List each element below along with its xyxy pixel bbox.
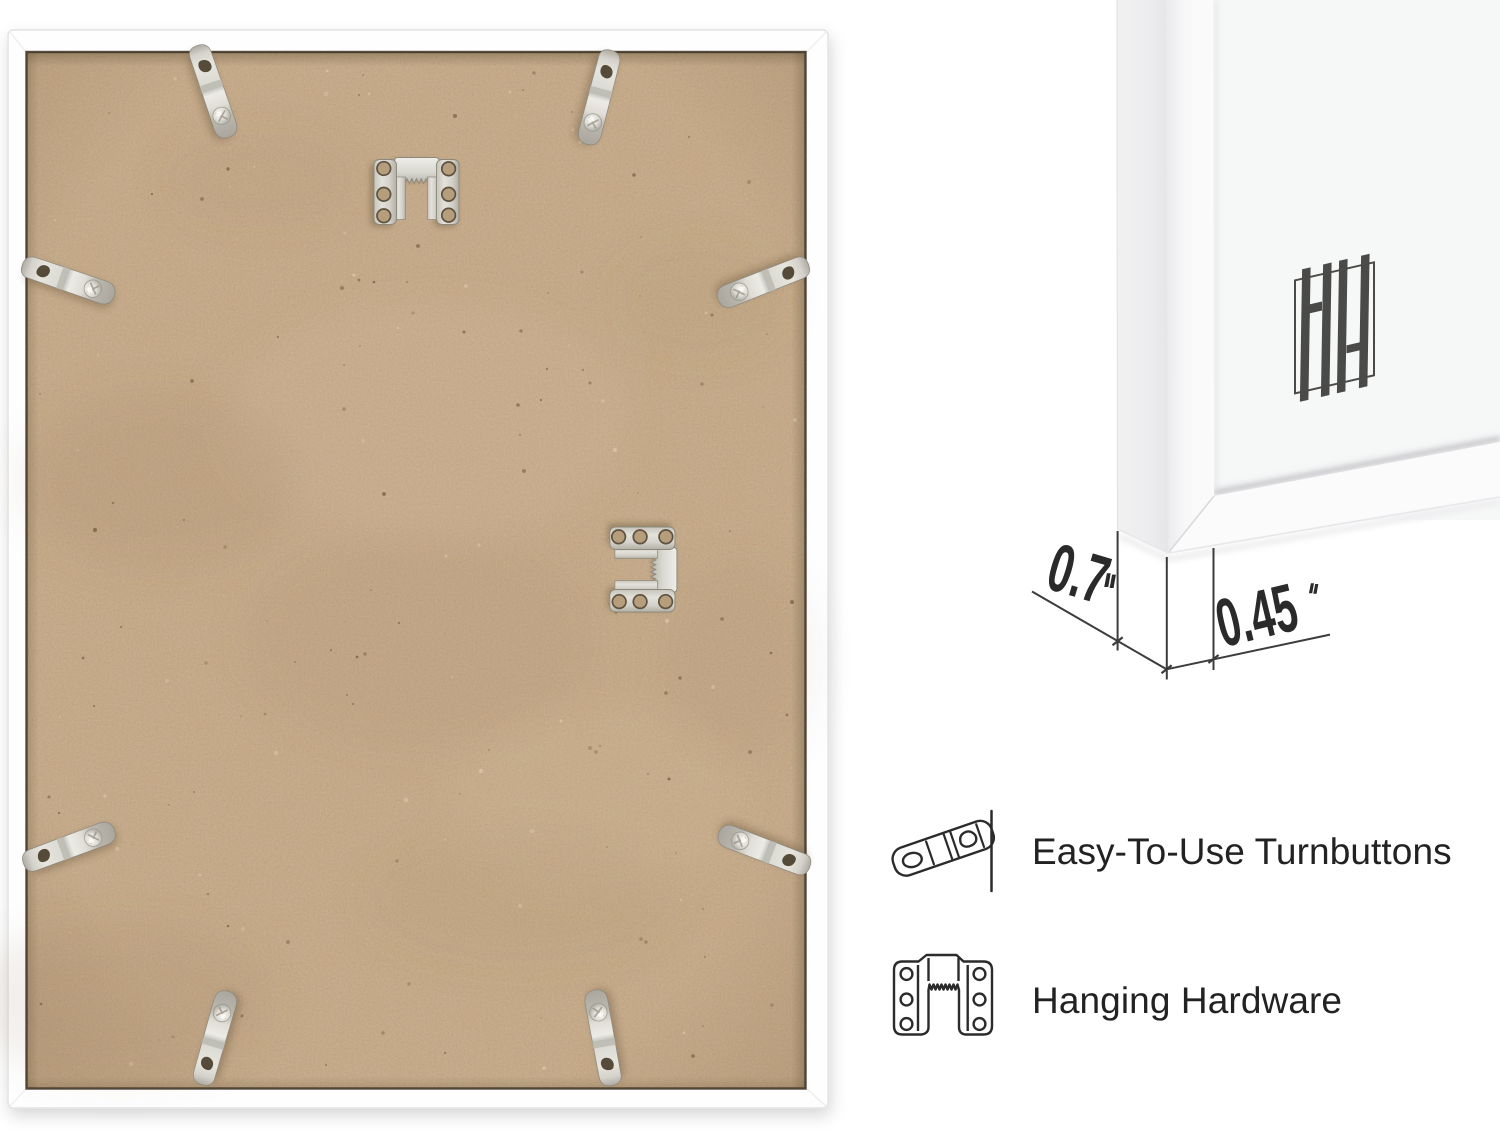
svg-text:Easy-To-Use Turnbuttons: Easy-To-Use Turnbuttons — [1032, 831, 1452, 872]
svg-text:Hanging Hardware: Hanging Hardware — [1032, 980, 1342, 1021]
